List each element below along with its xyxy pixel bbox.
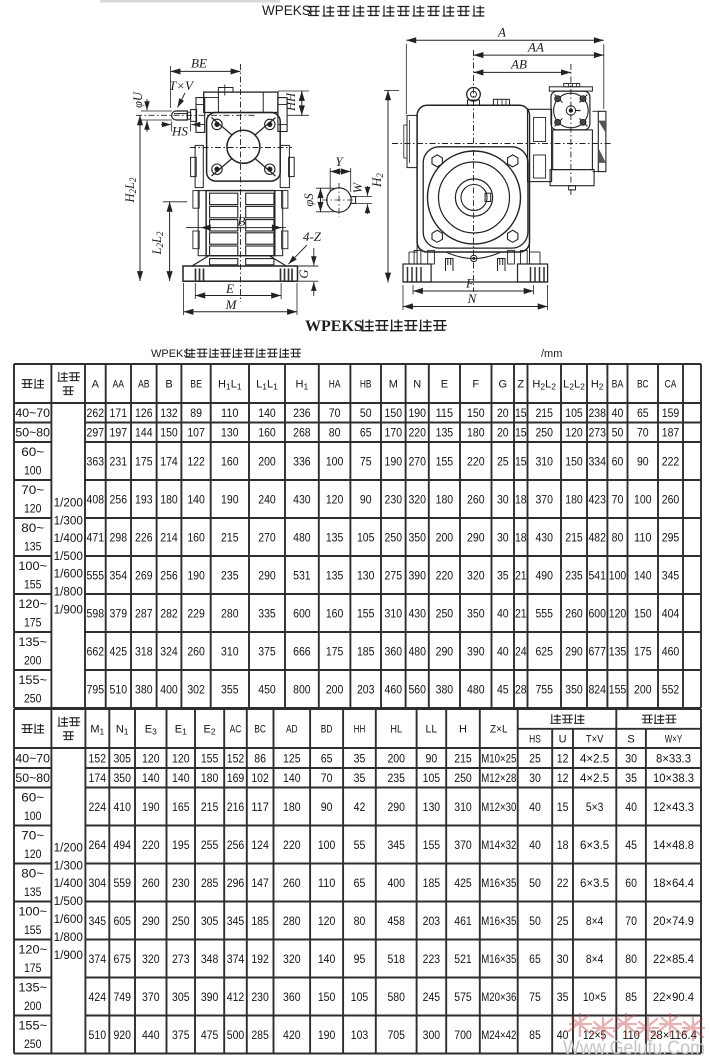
svg-text:WPEKS: WPEKS <box>262 3 311 18</box>
svg-text:220: 220 <box>436 568 454 582</box>
svg-text:500: 500 <box>227 1028 245 1042</box>
svg-text:150: 150 <box>467 406 485 420</box>
svg-text:296: 296 <box>227 876 245 890</box>
svg-text:50~80: 50~80 <box>15 426 50 440</box>
svg-text:40: 40 <box>529 838 541 852</box>
svg-text:220: 220 <box>142 838 160 852</box>
svg-text:275: 275 <box>385 568 403 582</box>
svg-text:140: 140 <box>142 771 160 785</box>
svg-text:HA: HA <box>329 379 341 391</box>
svg-text:100: 100 <box>24 809 42 823</box>
svg-text:200: 200 <box>436 530 454 544</box>
svg-text:280: 280 <box>221 606 239 620</box>
svg-text:30: 30 <box>625 751 637 765</box>
svg-text:70: 70 <box>637 426 649 440</box>
svg-text:559: 559 <box>113 876 131 890</box>
svg-text:T×V: T×V <box>586 733 604 745</box>
svg-text:412: 412 <box>227 990 245 1004</box>
svg-text:120: 120 <box>172 751 190 765</box>
svg-text:AB: AB <box>138 379 150 391</box>
svg-text:260: 260 <box>565 606 583 620</box>
svg-text:390: 390 <box>467 644 485 658</box>
svg-text:425: 425 <box>110 644 128 658</box>
svg-text:WPEKS: WPEKS <box>305 318 363 335</box>
svg-text:1/500: 1/500 <box>54 549 84 563</box>
svg-text:494: 494 <box>113 838 131 852</box>
svg-text:268: 268 <box>293 426 311 440</box>
svg-text:521: 521 <box>454 952 472 966</box>
svg-text:1/400: 1/400 <box>54 531 84 545</box>
svg-text:28: 28 <box>515 682 527 696</box>
svg-text:226: 226 <box>135 530 153 544</box>
svg-text:BE: BE <box>191 56 207 71</box>
svg-text:155: 155 <box>436 454 454 468</box>
svg-text:18: 18 <box>515 530 527 544</box>
svg-text:HB: HB <box>360 379 372 391</box>
svg-text:φU: φU <box>131 91 145 108</box>
svg-text:B: B <box>238 214 246 229</box>
svg-text:518: 518 <box>387 952 405 966</box>
svg-text:85: 85 <box>625 990 637 1004</box>
svg-text:423: 423 <box>588 492 606 506</box>
svg-text:40: 40 <box>497 644 509 658</box>
svg-text:120: 120 <box>326 492 344 506</box>
svg-text:461: 461 <box>454 914 472 928</box>
svg-text:35: 35 <box>557 990 569 1004</box>
svg-text:12×43.3: 12×43.3 <box>653 800 694 814</box>
svg-text:450: 450 <box>258 682 276 696</box>
svg-text:531: 531 <box>293 568 311 582</box>
svg-text:200: 200 <box>387 751 405 765</box>
svg-text:120: 120 <box>24 847 42 861</box>
svg-text:155: 155 <box>357 606 375 620</box>
svg-text:4-Z: 4-Z <box>303 229 322 244</box>
svg-text:HS: HS <box>171 124 188 139</box>
svg-text:70: 70 <box>625 914 637 928</box>
svg-text:BD: BD <box>321 724 333 736</box>
svg-text:40: 40 <box>497 606 509 620</box>
svg-text:250: 250 <box>535 426 553 440</box>
svg-text:10×5: 10×5 <box>583 990 607 1004</box>
svg-text:117: 117 <box>251 800 269 814</box>
svg-text:220: 220 <box>467 454 485 468</box>
svg-text:370: 370 <box>142 990 160 1004</box>
svg-text:552: 552 <box>662 682 680 696</box>
svg-text:175: 175 <box>326 644 344 658</box>
svg-text:102: 102 <box>251 771 269 785</box>
svg-text:120: 120 <box>565 426 583 440</box>
svg-text:60~: 60~ <box>21 791 44 805</box>
svg-text:6×3.5: 6×3.5 <box>580 876 609 890</box>
svg-text:120: 120 <box>609 606 627 620</box>
svg-text:150: 150 <box>565 454 583 468</box>
svg-text:103: 103 <box>351 1028 369 1042</box>
svg-text:B: B <box>165 379 172 391</box>
svg-text:AB: AB <box>510 57 527 72</box>
svg-text:605: 605 <box>113 914 131 928</box>
svg-text:169: 169 <box>227 771 245 785</box>
svg-text:8×4: 8×4 <box>586 952 604 966</box>
svg-text:100~: 100~ <box>18 905 47 919</box>
svg-text:22: 22 <box>557 876 569 890</box>
svg-text:80: 80 <box>354 914 366 928</box>
svg-text:229: 229 <box>187 606 205 620</box>
svg-text:8×33.3: 8×33.3 <box>656 751 691 765</box>
svg-text:126: 126 <box>135 406 153 420</box>
svg-text:390: 390 <box>201 990 219 1004</box>
svg-text:8×4: 8×4 <box>586 914 604 928</box>
svg-text:M24×42: M24×42 <box>481 1028 516 1042</box>
svg-text:1/300: 1/300 <box>54 858 84 872</box>
svg-text:430: 430 <box>293 492 311 506</box>
svg-text:155~: 155~ <box>18 1019 47 1033</box>
svg-text:482: 482 <box>588 530 606 544</box>
svg-text:425: 425 <box>454 876 472 890</box>
svg-text:215: 215 <box>565 530 583 544</box>
svg-text:N: N <box>467 291 478 306</box>
svg-text:70~: 70~ <box>21 829 44 843</box>
svg-text:555: 555 <box>87 568 105 582</box>
svg-text:190: 190 <box>187 568 205 582</box>
svg-text:370: 370 <box>535 492 553 506</box>
svg-text:287: 287 <box>135 606 153 620</box>
svg-text:80: 80 <box>612 530 624 544</box>
svg-text:22×85.4: 22×85.4 <box>653 952 694 966</box>
svg-text:130: 130 <box>357 568 375 582</box>
svg-text:30: 30 <box>529 771 541 785</box>
svg-text:1/200: 1/200 <box>54 496 84 510</box>
svg-text:95: 95 <box>354 952 366 966</box>
svg-text:334: 334 <box>588 454 606 468</box>
svg-text:60: 60 <box>612 454 624 468</box>
svg-text:190: 190 <box>142 800 160 814</box>
svg-text:140: 140 <box>283 771 301 785</box>
svg-text:70: 70 <box>329 406 341 420</box>
svg-text:90: 90 <box>360 492 372 506</box>
svg-text:256: 256 <box>227 838 245 852</box>
svg-text:310: 310 <box>535 454 553 468</box>
svg-text:18: 18 <box>557 838 569 852</box>
svg-text:800: 800 <box>293 682 311 696</box>
svg-text:55: 55 <box>354 838 366 852</box>
svg-text:320: 320 <box>283 952 301 966</box>
svg-text:262: 262 <box>87 406 105 420</box>
svg-text:475: 475 <box>201 1028 219 1042</box>
svg-text:256: 256 <box>110 492 128 506</box>
svg-text:200: 200 <box>258 454 276 468</box>
svg-text:89: 89 <box>190 406 202 420</box>
svg-text:40: 40 <box>529 800 541 814</box>
svg-text:G: G <box>297 269 311 278</box>
svg-text:159: 159 <box>662 406 680 420</box>
svg-text:140: 140 <box>318 952 336 966</box>
svg-text:1/800: 1/800 <box>54 585 84 599</box>
svg-text:180: 180 <box>283 800 301 814</box>
svg-text:510: 510 <box>110 682 128 696</box>
svg-text:18: 18 <box>515 492 527 506</box>
svg-text:216: 216 <box>227 800 245 814</box>
svg-text:390: 390 <box>408 568 426 582</box>
svg-text:236: 236 <box>293 406 311 420</box>
svg-text:100: 100 <box>318 838 336 852</box>
svg-text:LL: LL <box>426 724 438 736</box>
svg-text:410: 410 <box>113 800 131 814</box>
svg-text:86: 86 <box>254 751 266 765</box>
svg-text:305: 305 <box>201 914 219 928</box>
svg-text:675: 675 <box>113 952 131 966</box>
svg-text:380: 380 <box>135 682 153 696</box>
svg-text:15: 15 <box>515 406 527 420</box>
svg-text:A: A <box>497 25 506 40</box>
svg-text:270: 270 <box>258 530 276 544</box>
svg-text:30: 30 <box>497 530 509 544</box>
svg-text:50: 50 <box>529 914 541 928</box>
svg-text:310: 310 <box>221 644 239 658</box>
svg-text:10×38.3: 10×38.3 <box>653 771 694 785</box>
svg-text:600: 600 <box>588 606 606 620</box>
svg-text:200: 200 <box>24 999 42 1013</box>
svg-text:175: 175 <box>135 454 153 468</box>
svg-text:50~80: 50~80 <box>15 771 50 785</box>
svg-text:295: 295 <box>662 530 680 544</box>
svg-text:345: 345 <box>662 568 680 582</box>
svg-text:G: G <box>499 379 508 391</box>
svg-text:345: 345 <box>89 914 107 928</box>
svg-text:M16×35: M16×35 <box>481 876 516 890</box>
svg-text:348: 348 <box>201 952 219 966</box>
svg-text:35: 35 <box>625 771 637 785</box>
svg-text:135: 135 <box>609 644 627 658</box>
svg-text:302: 302 <box>187 682 205 696</box>
svg-text:M16×35: M16×35 <box>481 914 516 928</box>
svg-text:21: 21 <box>515 606 527 620</box>
svg-text:40: 40 <box>612 406 624 420</box>
svg-text:H: H <box>459 724 467 736</box>
svg-text:14×48.8: 14×48.8 <box>653 838 694 852</box>
svg-text:155: 155 <box>201 751 219 765</box>
svg-text:M16×35: M16×35 <box>481 952 516 966</box>
svg-text:85: 85 <box>529 1028 541 1042</box>
svg-text:70~: 70~ <box>21 483 44 497</box>
svg-text:345: 345 <box>387 838 405 852</box>
svg-text:100: 100 <box>634 492 652 506</box>
svg-text:150: 150 <box>385 406 403 420</box>
svg-text:60: 60 <box>625 876 637 890</box>
svg-text:824: 824 <box>588 682 606 696</box>
svg-text:135~: 135~ <box>18 981 47 995</box>
svg-text:363: 363 <box>87 454 105 468</box>
svg-text:130: 130 <box>423 800 441 814</box>
svg-text:304: 304 <box>89 876 107 890</box>
svg-text:920: 920 <box>113 1028 131 1042</box>
svg-text:193: 193 <box>135 492 153 506</box>
svg-text:100~: 100~ <box>18 559 47 573</box>
svg-text:F: F <box>472 379 479 391</box>
svg-text:290: 290 <box>436 644 454 658</box>
svg-text:490: 490 <box>535 568 553 582</box>
svg-text:1/900: 1/900 <box>54 948 84 962</box>
svg-text:140: 140 <box>258 406 276 420</box>
svg-text:180: 180 <box>565 492 583 506</box>
svg-text:320: 320 <box>467 568 485 582</box>
svg-text:256: 256 <box>160 568 178 582</box>
svg-text:155~: 155~ <box>18 673 47 687</box>
svg-text:80: 80 <box>329 426 341 440</box>
svg-text:22×90.4: 22×90.4 <box>653 990 694 1004</box>
svg-text:40~70: 40~70 <box>15 406 50 420</box>
svg-text:130: 130 <box>221 426 239 440</box>
svg-text:230: 230 <box>385 492 403 506</box>
svg-text:185: 185 <box>251 914 269 928</box>
svg-text:290: 290 <box>387 800 405 814</box>
svg-text:230: 230 <box>251 990 269 1004</box>
svg-text:305: 305 <box>172 990 190 1004</box>
svg-text:264: 264 <box>89 838 107 852</box>
svg-text:M10×25: M10×25 <box>481 751 516 765</box>
svg-text:298: 298 <box>110 530 128 544</box>
svg-text:240: 240 <box>258 492 276 506</box>
svg-text:335: 335 <box>258 606 276 620</box>
svg-text:135: 135 <box>326 568 344 582</box>
svg-text:260: 260 <box>142 876 160 890</box>
svg-text:231: 231 <box>110 454 128 468</box>
svg-text:147: 147 <box>251 876 269 890</box>
svg-text:30: 30 <box>497 492 509 506</box>
svg-text:290: 290 <box>467 530 485 544</box>
svg-text:E: E <box>225 281 234 296</box>
svg-text:S: S <box>627 733 634 745</box>
svg-text:250: 250 <box>172 914 190 928</box>
svg-text:160: 160 <box>326 606 344 620</box>
svg-text:5×3: 5×3 <box>586 800 604 814</box>
svg-text:440: 440 <box>142 1028 160 1042</box>
svg-text:21: 21 <box>515 568 527 582</box>
svg-text:270: 270 <box>408 454 426 468</box>
svg-text:110: 110 <box>634 530 652 544</box>
svg-text:400: 400 <box>387 876 405 890</box>
svg-text:Z×L: Z×L <box>490 724 508 736</box>
svg-text:285: 285 <box>251 1028 269 1042</box>
svg-text:200: 200 <box>634 682 652 696</box>
svg-text:N: N <box>413 379 421 391</box>
svg-text:160: 160 <box>187 530 205 544</box>
svg-text:105: 105 <box>351 990 369 1004</box>
svg-text:480: 480 <box>467 682 485 696</box>
svg-text:Z: Z <box>517 379 524 391</box>
svg-text:M: M <box>389 379 398 391</box>
svg-text:320: 320 <box>408 492 426 506</box>
svg-text:12: 12 <box>557 751 569 765</box>
svg-text:HH: HH <box>354 724 366 736</box>
svg-text:50: 50 <box>529 876 541 890</box>
svg-text:65: 65 <box>360 426 372 440</box>
svg-text:45: 45 <box>497 682 509 696</box>
svg-text:625: 625 <box>535 644 553 658</box>
svg-text:35: 35 <box>354 751 366 765</box>
svg-text:380: 380 <box>436 682 454 696</box>
svg-text:50: 50 <box>360 406 372 420</box>
svg-text:215: 215 <box>535 406 553 420</box>
svg-text:HL: HL <box>390 724 402 736</box>
svg-text:222: 222 <box>662 454 680 468</box>
svg-text:160: 160 <box>258 426 276 440</box>
svg-text:187: 187 <box>662 426 680 440</box>
svg-text:105: 105 <box>565 406 583 420</box>
svg-text:40: 40 <box>625 800 637 814</box>
svg-text:354: 354 <box>110 568 128 582</box>
svg-text:160: 160 <box>221 454 239 468</box>
svg-text:25: 25 <box>529 751 541 765</box>
svg-text:140: 140 <box>187 492 205 506</box>
svg-text:HS: HS <box>529 733 541 745</box>
svg-text:430: 430 <box>408 606 426 620</box>
svg-text:260: 260 <box>662 492 680 506</box>
svg-text:100: 100 <box>24 464 42 478</box>
svg-text:175: 175 <box>24 616 42 630</box>
svg-text:190: 190 <box>385 454 403 468</box>
svg-text:749: 749 <box>113 990 131 1004</box>
svg-text:18×64.4: 18×64.4 <box>653 876 694 890</box>
svg-text:35: 35 <box>497 568 509 582</box>
svg-text:107: 107 <box>187 426 205 440</box>
svg-text:1/800: 1/800 <box>54 930 84 944</box>
svg-text:BE: BE <box>190 379 202 391</box>
svg-text:15: 15 <box>515 454 527 468</box>
svg-text:BC: BC <box>254 724 266 736</box>
svg-text:190: 190 <box>318 1028 336 1042</box>
svg-text:105: 105 <box>357 530 375 544</box>
svg-text:662: 662 <box>87 644 105 658</box>
svg-text:273: 273 <box>172 952 190 966</box>
svg-text:375: 375 <box>172 1028 190 1042</box>
svg-text:420: 420 <box>283 1028 301 1042</box>
svg-text:220: 220 <box>283 838 301 852</box>
svg-text:666: 666 <box>293 644 311 658</box>
svg-text:318: 318 <box>135 644 153 658</box>
svg-text:350: 350 <box>408 530 426 544</box>
svg-text:360: 360 <box>283 990 301 1004</box>
svg-text:480: 480 <box>293 530 311 544</box>
svg-text:50: 50 <box>612 426 624 440</box>
svg-text:290: 290 <box>258 568 276 582</box>
svg-text:20×74.9: 20×74.9 <box>653 914 694 928</box>
svg-text:235: 235 <box>387 771 405 785</box>
svg-text:42: 42 <box>354 800 366 814</box>
svg-text:M12×28: M12×28 <box>481 771 516 785</box>
svg-text:220: 220 <box>408 426 426 440</box>
svg-text:65: 65 <box>354 876 366 890</box>
svg-text:140: 140 <box>634 568 652 582</box>
svg-text:U: U <box>559 733 567 745</box>
svg-text:185: 185 <box>357 644 375 658</box>
svg-text:460: 460 <box>385 682 403 696</box>
svg-text:WPEKS: WPEKS <box>151 348 191 360</box>
svg-text:195: 195 <box>172 838 190 852</box>
svg-text:203: 203 <box>423 914 441 928</box>
svg-text:174: 174 <box>89 771 107 785</box>
svg-text:70: 70 <box>321 771 333 785</box>
svg-text:460: 460 <box>662 644 680 658</box>
svg-text:120: 120 <box>318 914 336 928</box>
svg-text:M: M <box>225 297 238 312</box>
svg-text:374: 374 <box>89 952 107 966</box>
svg-text:F: F <box>465 276 475 291</box>
svg-text:75: 75 <box>360 454 372 468</box>
svg-text:35: 35 <box>354 771 366 785</box>
svg-text:150: 150 <box>634 606 652 620</box>
svg-text:175: 175 <box>24 961 42 975</box>
svg-text:CA: CA <box>665 379 677 391</box>
